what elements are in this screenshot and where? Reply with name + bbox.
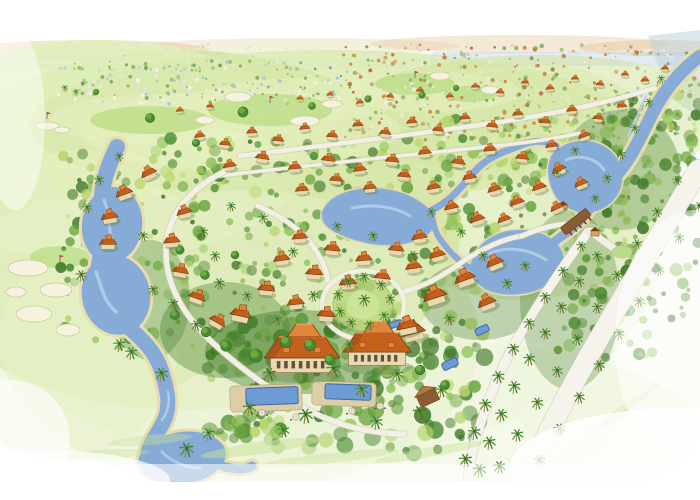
palm-crown [160, 372, 162, 374]
villa-roof-wing [327, 153, 332, 157]
distant-development-speckle [248, 46, 250, 48]
palm-crown [574, 149, 575, 150]
distant-development-speckle [65, 45, 67, 47]
vegetation-cluster [622, 237, 627, 242]
distant-development-speckle [363, 52, 366, 55]
distant-development-speckle [410, 111, 412, 113]
distant-development-speckle [195, 78, 199, 82]
distant-development-speckle [442, 137, 446, 141]
distant-development-speckle [379, 46, 381, 48]
distant-development-speckle [523, 105, 525, 107]
distant-development-speckle [163, 67, 165, 69]
vegetation-cluster [69, 225, 80, 236]
resort-masterplan-rendering [0, 0, 700, 500]
vegetation-cluster [240, 278, 245, 283]
distant-development-speckle [287, 47, 288, 48]
vegetation-cluster [66, 264, 74, 272]
distant-development-speckle [535, 94, 538, 97]
vegetation-cluster [280, 281, 286, 287]
distant-development-speckle [184, 94, 186, 96]
vegetation-cluster [305, 174, 315, 184]
distant-development-speckle [432, 116, 434, 118]
lounge-chair [356, 413, 358, 414]
distant-development-speckle [528, 94, 530, 96]
distant-development-speckle [408, 100, 411, 103]
distant-development-speckle [262, 93, 264, 95]
distant-development-speckle [214, 61, 216, 63]
distant-development-speckle [106, 94, 108, 96]
distant-development-speckle [202, 44, 205, 47]
distant-development-speckle [613, 45, 615, 47]
palm-crown [598, 364, 600, 366]
distant-development-speckle [283, 98, 287, 102]
distant-development-speckle [143, 87, 147, 91]
vegetation-cluster [529, 181, 535, 187]
distant-development-speckle [286, 102, 289, 105]
distant-development-speckle [245, 48, 247, 50]
distant-development-speckle [344, 136, 347, 139]
vegetation-cluster [186, 261, 193, 268]
golf-bunker [6, 287, 26, 297]
distant-development-speckle [482, 119, 484, 121]
vegetation-cluster [435, 174, 442, 181]
distant-development-speckle [424, 75, 427, 78]
distant-development-speckle [170, 78, 174, 82]
vegetation-cluster [245, 233, 253, 241]
vegetation-cluster [519, 213, 523, 217]
distant-development-speckle [206, 88, 209, 91]
distant-development-speckle [476, 44, 477, 45]
golfer-figure [319, 111, 321, 113]
distant-development-speckle [443, 53, 445, 55]
vegetation-cluster [199, 200, 211, 212]
distant-development-speckle [361, 73, 362, 74]
villa-window [299, 361, 303, 368]
distant-development-speckle [336, 80, 339, 83]
vegetation-cluster [463, 208, 467, 212]
distant-development-speckle [139, 101, 143, 105]
distant-development-speckle [313, 81, 317, 85]
distant-development-speckle [225, 84, 227, 86]
distant-development-speckle [80, 67, 84, 71]
distant-development-speckle [412, 59, 414, 61]
distant-development-speckle [166, 84, 170, 88]
distant-development-speckle [255, 76, 259, 80]
villa-window [374, 355, 377, 362]
distant-development-speckle [317, 93, 320, 96]
palm-crown [64, 87, 65, 88]
vegetation-cluster [80, 258, 89, 267]
villa-roof-wing [324, 306, 330, 311]
vegetation-cluster [225, 179, 229, 183]
palm-crown [448, 318, 450, 320]
distant-development-speckle [388, 102, 392, 106]
distant-development-speckle [99, 66, 101, 68]
distant-development-speckle [78, 89, 81, 92]
distant-development-speckle [65, 55, 67, 57]
distant-development-speckle [121, 73, 125, 77]
distant-development-speckle [85, 81, 87, 83]
palm-crown [660, 78, 661, 79]
vegetation-cluster [462, 346, 474, 358]
distant-development-speckle [359, 75, 363, 79]
distant-development-speckle [614, 70, 618, 74]
distant-development-speckle [412, 87, 417, 92]
golf-bunker [16, 306, 52, 322]
distant-development-speckle [691, 84, 693, 86]
distant-development-speckle [70, 82, 72, 84]
tree-highlight [146, 114, 152, 120]
distant-development-speckle [109, 61, 111, 63]
distant-development-speckle [79, 75, 82, 78]
distant-development-speckle [403, 62, 406, 65]
distant-development-speckle [611, 54, 613, 56]
distant-development-speckle [383, 56, 387, 60]
distant-development-speckle [430, 108, 431, 109]
palm-crown [118, 343, 120, 345]
vegetation-cluster [266, 221, 272, 227]
distant-development-speckle [267, 85, 270, 88]
distant-development-speckle [276, 86, 278, 88]
villa-roof-wing [381, 269, 387, 274]
distant-development-speckle [434, 103, 437, 106]
distant-development-speckle [615, 56, 616, 57]
palm-crown [336, 225, 337, 226]
vegetation-cluster [77, 149, 88, 160]
palm-crown [482, 254, 484, 256]
vegetation-cluster [252, 261, 257, 266]
distant-development-speckle [222, 83, 225, 86]
distant-development-speckle [248, 60, 251, 63]
distant-development-speckle [586, 114, 589, 117]
vegetation-cluster [692, 122, 697, 127]
villa-roof-wing [331, 241, 337, 246]
distant-development-speckle [534, 46, 537, 49]
distant-development-speckle [387, 72, 389, 74]
distant-development-speckle [477, 46, 479, 48]
vegetation-cluster [572, 118, 579, 125]
palm-crown [473, 430, 475, 432]
distant-development-speckle [537, 46, 540, 49]
tree-highlight [201, 271, 206, 276]
vegetation-cluster [92, 336, 99, 343]
distant-development-speckle [500, 80, 502, 82]
villa-roof-wing [599, 80, 602, 82]
golf-bunker [40, 283, 72, 297]
distant-development-speckle [71, 54, 72, 55]
villa-dormer [388, 343, 394, 348]
distant-development-speckle [287, 73, 289, 75]
palm-crown [98, 178, 100, 180]
distant-development-speckle [124, 55, 126, 57]
vegetation-cluster [388, 400, 395, 407]
distant-development-speckle [109, 73, 111, 75]
villa-roof-wing [574, 75, 577, 77]
vegetation-cluster [66, 157, 73, 164]
distant-development-speckle [159, 96, 162, 99]
palm-crown [262, 216, 264, 218]
vegetation-cluster [689, 148, 694, 153]
distant-development-speckle [543, 72, 547, 76]
distant-development-speckle [568, 48, 571, 51]
villa-window [292, 361, 296, 368]
distant-development-speckle [578, 54, 580, 56]
distant-development-speckle [467, 53, 469, 55]
distant-development-speckle [570, 55, 571, 56]
distant-development-speckle [525, 49, 526, 50]
distant-development-speckle [416, 47, 418, 49]
palm-crown [248, 406, 250, 408]
distant-development-speckle [666, 62, 669, 65]
distant-development-speckle [338, 96, 342, 100]
palm-crown [594, 197, 595, 198]
distant-development-speckle [460, 96, 463, 99]
distant-development-speckle [276, 68, 278, 70]
distant-development-speckle [156, 80, 159, 83]
swimming-pool [246, 387, 299, 406]
distant-development-speckle [539, 63, 543, 67]
distant-development-speckle [425, 46, 427, 48]
distant-development-speckle [340, 85, 342, 87]
distant-development-speckle [576, 91, 578, 93]
distant-development-speckle [74, 98, 77, 101]
distant-development-speckle [150, 69, 152, 71]
palm-crown [580, 244, 582, 246]
distant-development-speckle [125, 63, 128, 66]
distant-development-speckle [474, 65, 477, 68]
vegetation-cluster [162, 151, 167, 156]
villa-roof-wing [329, 91, 332, 93]
vegetation-cluster [164, 132, 176, 144]
distant-development-speckle [288, 67, 292, 71]
distant-development-speckle [162, 101, 165, 104]
distant-development-speckle [186, 86, 188, 88]
distant-development-speckle [527, 49, 528, 50]
distant-development-speckle [260, 83, 263, 86]
distant-development-speckle [108, 67, 111, 70]
lounge-chair [346, 413, 348, 414]
palm-crown [360, 388, 362, 390]
distant-development-speckle [525, 103, 529, 107]
distant-development-speckle [648, 52, 651, 55]
distant-development-speckle [205, 78, 207, 80]
distant-development-speckle [203, 47, 205, 49]
palm-crown [86, 206, 88, 208]
round-tree [238, 107, 248, 117]
distant-development-speckle [247, 82, 248, 83]
villa-roof-wing [457, 156, 462, 160]
vegetation-cluster [174, 150, 182, 158]
distant-development-speckle [108, 65, 110, 67]
distant-development-speckle [442, 55, 447, 60]
distant-development-speckle [436, 55, 438, 57]
distant-development-speckle [583, 61, 586, 64]
distant-development-speckle [425, 96, 429, 100]
distant-development-speckle [136, 78, 140, 82]
golfer-figure [299, 107, 301, 109]
tree-highlight [325, 355, 331, 361]
distant-development-speckle [348, 91, 350, 93]
distant-development-speckle [428, 126, 430, 128]
distant-development-speckle [400, 114, 404, 118]
distant-development-speckle [427, 49, 429, 51]
distant-development-speckle [218, 51, 220, 53]
vegetation-cluster [389, 379, 395, 385]
distant-development-speckle [483, 46, 484, 47]
distant-development-speckle [470, 46, 471, 47]
palm-crown [332, 367, 334, 369]
vegetation-cluster [454, 412, 466, 424]
golfer-figure [142, 119, 144, 121]
distant-development-speckle [687, 112, 690, 115]
distant-development-speckle [395, 101, 398, 104]
vegetation-cluster [268, 189, 275, 196]
villa-wall [662, 69, 668, 71]
tree-highlight [231, 251, 236, 256]
distant-development-speckle [365, 45, 368, 48]
distant-development-speckle [422, 78, 426, 82]
vegetation-cluster [517, 183, 522, 188]
distant-development-speckle [221, 52, 223, 54]
distant-development-speckle [467, 88, 469, 90]
distant-development-speckle [627, 50, 629, 52]
palm-crown [528, 322, 530, 324]
distant-development-speckle [195, 54, 197, 56]
distant-development-speckle [349, 63, 352, 66]
distant-development-speckle [216, 60, 219, 63]
palm-crown [484, 403, 486, 405]
distant-development-speckle [418, 43, 421, 46]
distant-development-speckle [593, 81, 596, 84]
vegetation-cluster [64, 277, 71, 284]
palm-crown [412, 254, 414, 256]
distant-development-speckle [178, 101, 180, 103]
distant-development-speckle [191, 69, 194, 72]
palm-crown [75, 91, 76, 92]
villa-roof-wing [265, 281, 271, 286]
distant-development-speckle [603, 52, 604, 53]
distant-development-speckle [98, 101, 100, 103]
distant-development-speckle [291, 85, 295, 89]
round-tree [419, 92, 426, 99]
distant-development-speckle [275, 53, 277, 55]
distant-development-speckle [188, 86, 192, 90]
villa-roof-wing [359, 99, 362, 102]
distant-development-speckle [333, 52, 334, 53]
distant-development-speckle [523, 46, 527, 50]
vegetation-cluster [304, 260, 310, 266]
distant-development-speckle [106, 78, 109, 81]
palm-crown [506, 282, 508, 284]
distant-development-speckle [75, 84, 78, 87]
distant-development-speckle [57, 93, 61, 97]
distant-development-speckle [172, 89, 175, 92]
distant-development-speckle [348, 82, 353, 87]
distant-development-speckle [586, 51, 588, 53]
distant-development-speckle [644, 70, 647, 73]
distant-development-speckle [465, 46, 467, 48]
distant-development-speckle [540, 44, 545, 49]
distant-development-speckle [640, 98, 643, 101]
round-tree [365, 96, 372, 103]
distant-development-speckle [304, 87, 307, 90]
distant-development-speckle [493, 46, 496, 49]
distant-development-speckle [268, 62, 270, 64]
vegetation-cluster [274, 192, 279, 197]
swimming-pool [325, 384, 371, 401]
distant-development-speckle [519, 53, 520, 54]
distant-development-speckle [589, 56, 592, 59]
distant-development-speckle [463, 53, 466, 56]
palm-crown [383, 314, 385, 316]
palm-crown [368, 323, 370, 325]
palm-crown [389, 297, 391, 299]
distant-development-speckle [144, 62, 148, 66]
distant-development-speckle [123, 66, 125, 68]
distant-development-speckle [252, 55, 254, 57]
villa-wall [327, 95, 332, 97]
round-tree [415, 365, 425, 375]
distant-development-speckle [141, 60, 145, 64]
distant-development-speckle [633, 53, 635, 55]
palm-crown [596, 306, 598, 308]
vegetation-cluster [303, 208, 308, 213]
distant-development-speckle [603, 49, 605, 51]
palm-crown [380, 283, 382, 285]
distant-development-speckle [512, 71, 514, 73]
vegetation-cluster [516, 134, 521, 139]
distant-development-speckle [412, 85, 414, 87]
tree-highlight [193, 139, 198, 144]
distant-development-speckle [513, 105, 515, 107]
vegetation-cluster [67, 189, 78, 200]
villa-wall [101, 244, 114, 249]
distant-development-speckle [295, 61, 296, 62]
vegetation-cluster [318, 432, 333, 447]
vegetation-cluster [77, 178, 81, 182]
distant-development-speckle [327, 79, 330, 82]
distant-development-speckle [308, 97, 310, 99]
distant-development-speckle [404, 46, 406, 48]
villa-roof-wing [224, 138, 228, 141]
distant-development-speckle [326, 91, 328, 93]
distant-development-speckle [95, 60, 97, 62]
distant-development-speckle [384, 101, 388, 105]
distant-development-speckle [295, 67, 299, 71]
distant-development-speckle [516, 93, 520, 97]
distant-development-speckle [575, 52, 577, 54]
vegetation-cluster [206, 157, 217, 168]
distant-development-speckle [367, 59, 370, 62]
roundabout-island [612, 246, 632, 258]
palm-crown [152, 288, 154, 290]
distant-development-speckle [553, 101, 555, 103]
distant-development-speckle [332, 65, 336, 69]
distant-development-speckle [370, 95, 372, 97]
distant-development-speckle [383, 44, 385, 46]
golf-bunker [196, 116, 214, 124]
distant-development-speckle [546, 52, 547, 53]
distant-development-speckle [693, 152, 696, 155]
distant-development-speckle [345, 79, 347, 81]
distant-development-speckle [416, 97, 420, 101]
vegetation-cluster [315, 168, 322, 175]
distant-development-speckle [382, 95, 385, 98]
golf-bunker [430, 72, 450, 80]
distant-development-speckle [443, 55, 444, 56]
distant-development-speckle [410, 44, 411, 45]
distant-development-speckle [531, 87, 533, 89]
